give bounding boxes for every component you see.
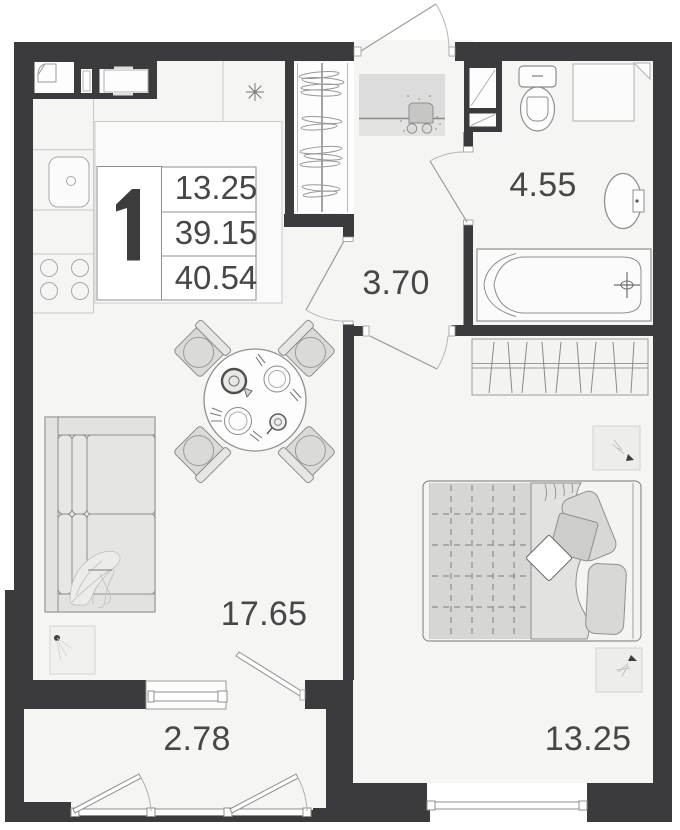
svg-text:2.78: 2.78 xyxy=(163,720,230,758)
svg-text:40.54: 40.54 xyxy=(175,259,258,296)
svg-text:3.70: 3.70 xyxy=(362,264,429,302)
svg-text:17.65: 17.65 xyxy=(221,595,308,633)
svg-text:39.15: 39.15 xyxy=(175,214,258,251)
svg-text:4.55: 4.55 xyxy=(509,166,576,204)
svg-text:13.25: 13.25 xyxy=(545,720,632,758)
svg-text:13.25: 13.25 xyxy=(175,169,258,206)
